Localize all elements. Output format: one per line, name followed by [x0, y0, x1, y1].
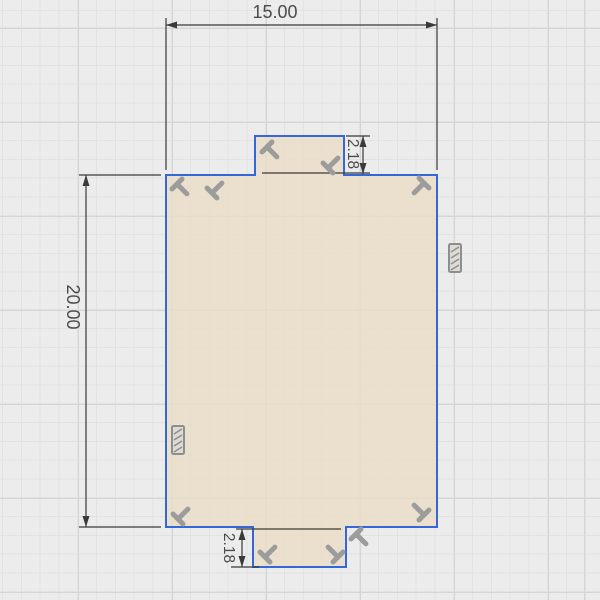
dimension-tab-bottom-value[interactable]: 2.18 [220, 533, 237, 563]
sketch-drawing: 15.00 20.00 2.18 2.18 [0, 0, 600, 600]
fix-constraint-icon[interactable] [172, 426, 184, 454]
dimension-arrowhead [239, 556, 246, 567]
sketch-canvas[interactable]: 15.00 20.00 2.18 2.18 [0, 0, 600, 600]
dimension-width-value[interactable]: 15.00 [252, 2, 297, 22]
dimension-arrowhead [83, 175, 90, 186]
sketch-profile[interactable] [166, 136, 437, 567]
perpendicular-constraint-icon[interactable] [351, 529, 371, 549]
dimension-arrowhead [239, 529, 246, 540]
dimension-arrowhead [426, 22, 437, 29]
dimension-height[interactable]: 20.00 [63, 175, 161, 527]
dimension-arrowhead [166, 22, 177, 29]
fix-constraint-icon[interactable] [449, 244, 461, 272]
dimension-height-value[interactable]: 20.00 [63, 284, 83, 329]
dimension-arrowhead [83, 516, 90, 527]
dimension-tab-top-value[interactable]: 2.18 [344, 139, 361, 169]
